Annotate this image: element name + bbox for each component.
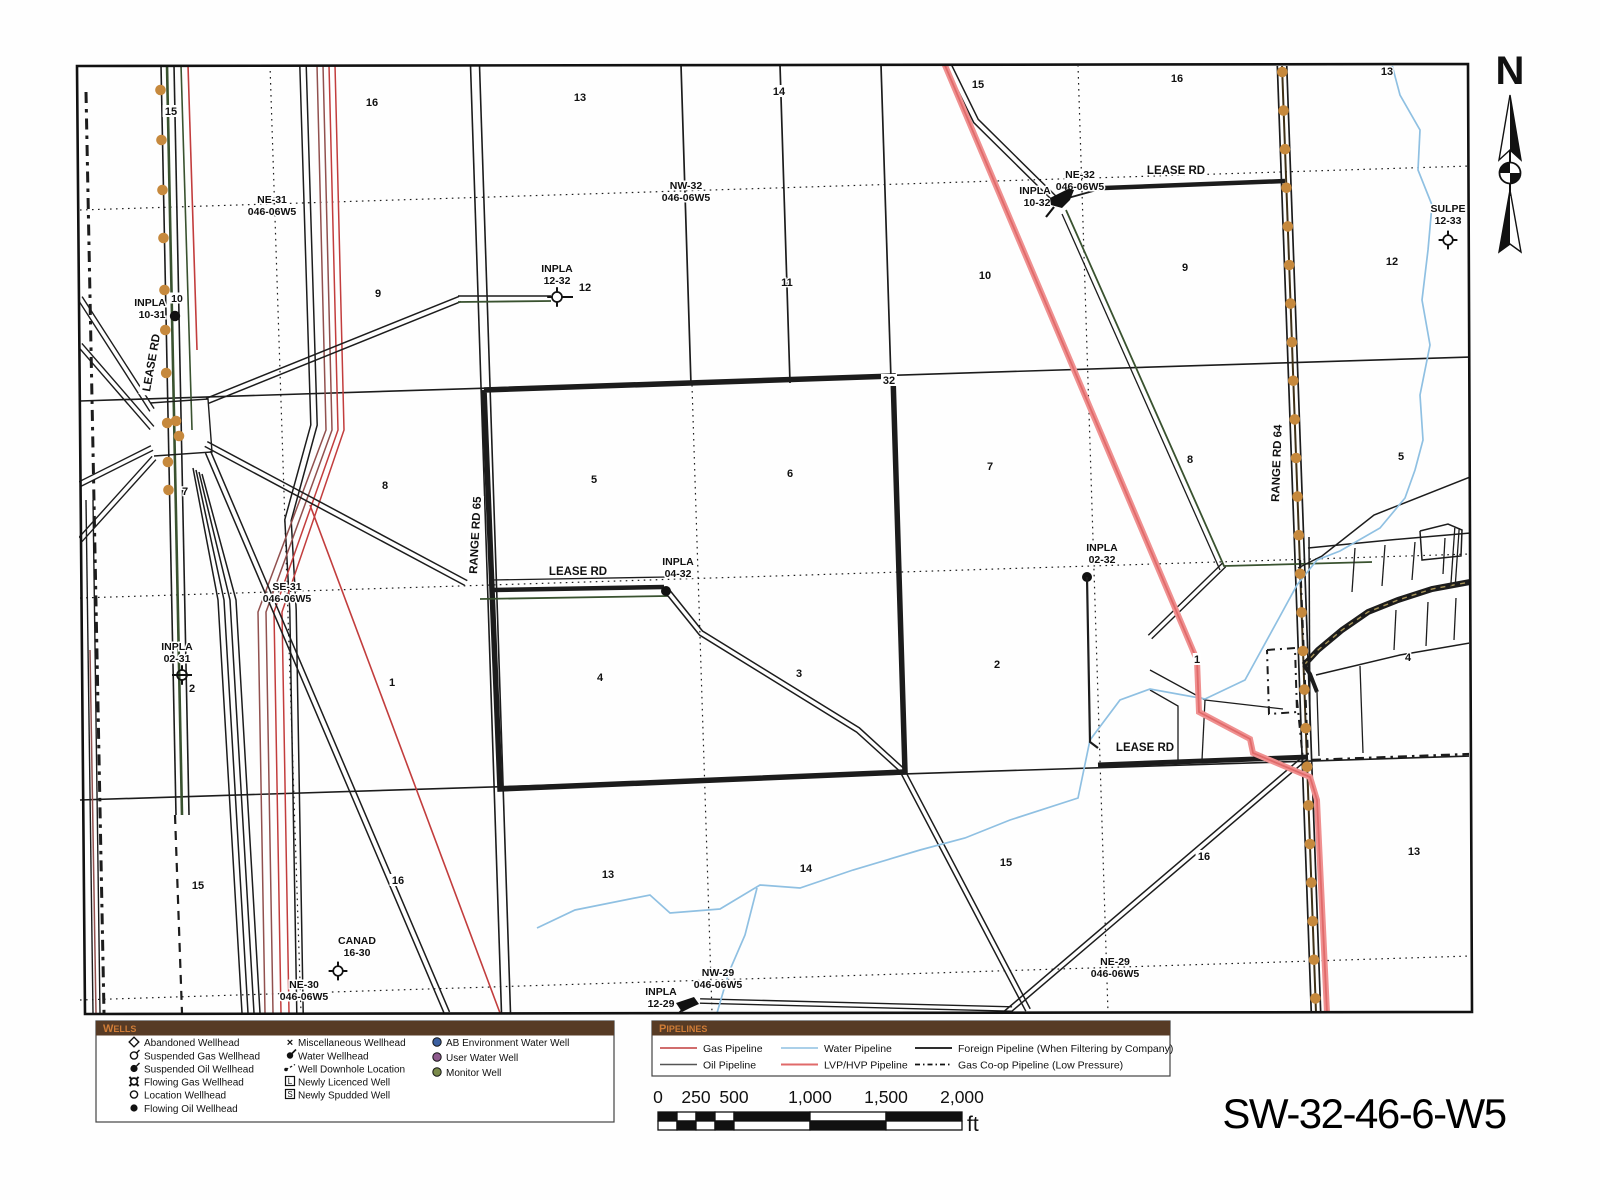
svg-text:SULPE: SULPE	[1430, 203, 1465, 215]
svg-text:NE-29: NE-29	[1100, 956, 1130, 968]
svg-text:LVP/HVP Pipeline: LVP/HVP Pipeline	[824, 1060, 908, 1072]
svg-text:LEASE RD: LEASE RD	[1147, 165, 1205, 177]
svg-text:SE-31: SE-31	[272, 581, 301, 593]
svg-text:10-31: 10-31	[139, 309, 166, 321]
svg-text:S: S	[287, 1090, 292, 1099]
svg-text:12: 12	[1386, 256, 1398, 268]
svg-text:10: 10	[979, 270, 991, 282]
svg-text:0: 0	[653, 1087, 663, 1107]
svg-text:Water Wellhead: Water Wellhead	[298, 1052, 369, 1063]
svg-text:046-06W5: 046-06W5	[1056, 181, 1105, 193]
svg-text:×: ×	[287, 1037, 293, 1049]
svg-text:Monitor Well: Monitor Well	[446, 1068, 501, 1079]
svg-text:INPLA: INPLA	[134, 297, 166, 309]
svg-text:16: 16	[366, 97, 378, 109]
svg-text:13: 13	[574, 92, 586, 104]
svg-text:16: 16	[392, 875, 404, 887]
svg-text:Newly Spudded Well: Newly Spudded Well	[298, 1091, 390, 1102]
svg-text:Suspended Oil Wellhead: Suspended Oil Wellhead	[144, 1065, 254, 1076]
svg-text:2: 2	[994, 659, 1000, 671]
svg-text:11: 11	[781, 277, 793, 289]
svg-text:7: 7	[182, 486, 188, 498]
svg-text:Flowing Oil Wellhead: Flowing Oil Wellhead	[144, 1104, 238, 1115]
svg-text:Flowing Gas Wellhead: Flowing Gas Wellhead	[144, 1078, 244, 1089]
svg-text:16: 16	[1198, 851, 1210, 863]
svg-text:SW-32-46-6-W5: SW-32-46-6-W5	[1222, 1090, 1505, 1137]
svg-text:Suspended Gas Wellhead: Suspended Gas Wellhead	[144, 1052, 260, 1063]
svg-text:N: N	[1496, 49, 1525, 93]
svg-text:INPLA: INPLA	[1019, 185, 1051, 197]
svg-text:9: 9	[1182, 262, 1188, 274]
svg-text:1: 1	[389, 677, 395, 689]
svg-text:16-30: 16-30	[344, 947, 371, 959]
svg-text:10: 10	[171, 293, 183, 305]
svg-text:32: 32	[883, 375, 895, 387]
svg-text:15: 15	[192, 880, 204, 892]
svg-text:04-32: 04-32	[665, 568, 692, 580]
svg-text:3: 3	[796, 668, 802, 680]
svg-text:14: 14	[800, 863, 813, 875]
svg-text:13: 13	[1408, 846, 1420, 858]
svg-text:15: 15	[1000, 857, 1012, 869]
svg-text:1,500: 1,500	[864, 1087, 908, 1107]
svg-text:1: 1	[1194, 654, 1200, 666]
svg-text:10-32: 10-32	[1024, 197, 1051, 209]
svg-text:8: 8	[382, 480, 388, 492]
svg-text:15: 15	[165, 106, 177, 118]
svg-text:250: 250	[681, 1087, 710, 1107]
svg-text:User Water Well: User Water Well	[446, 1053, 518, 1064]
svg-text:046-06W5: 046-06W5	[248, 206, 297, 218]
svg-text:Well Downhole Location: Well Downhole Location	[298, 1065, 405, 1076]
svg-text:12-32: 12-32	[544, 275, 571, 287]
svg-text:WELLS: WELLS	[103, 1023, 136, 1035]
svg-text:NW-29: NW-29	[702, 967, 735, 979]
svg-text:NE-32: NE-32	[1065, 169, 1095, 181]
svg-text:02-31: 02-31	[164, 653, 191, 665]
svg-text:NE-30: NE-30	[289, 979, 319, 991]
svg-text:INPLA: INPLA	[161, 641, 193, 653]
svg-text:046-06W5: 046-06W5	[694, 979, 743, 991]
svg-text:6: 6	[787, 468, 793, 480]
svg-text:046-06W5: 046-06W5	[263, 593, 312, 605]
svg-text:4: 4	[597, 672, 604, 684]
svg-text:Gas Co-op Pipeline (Low Pressu: Gas Co-op Pipeline (Low Pressure)	[958, 1060, 1123, 1072]
svg-text:046-06W5: 046-06W5	[662, 192, 711, 204]
svg-text:12-33: 12-33	[1435, 215, 1462, 227]
svg-text:13: 13	[602, 869, 614, 881]
svg-text:12: 12	[579, 282, 591, 294]
svg-text:12-29: 12-29	[648, 998, 675, 1010]
svg-text:LEASE RD: LEASE RD	[549, 566, 607, 578]
svg-text:9: 9	[375, 288, 381, 300]
svg-text:500: 500	[719, 1087, 748, 1107]
svg-text:046-06W5: 046-06W5	[1091, 968, 1140, 980]
svg-text:Location Wellhead: Location Wellhead	[144, 1091, 226, 1102]
svg-text:16: 16	[1171, 73, 1183, 85]
svg-text:NE-31: NE-31	[257, 194, 287, 206]
svg-text:5: 5	[1398, 451, 1404, 463]
svg-text:NW-32: NW-32	[670, 180, 703, 192]
svg-text:AB Environment Water Well: AB Environment Water Well	[446, 1038, 569, 1049]
svg-text:Miscellaneous Wellhead: Miscellaneous Wellhead	[298, 1038, 406, 1049]
svg-text:2,000: 2,000	[940, 1087, 984, 1107]
svg-text:8: 8	[1187, 454, 1193, 466]
svg-text:5: 5	[591, 474, 597, 486]
svg-text:14: 14	[773, 86, 786, 98]
svg-text:PIPELINES: PIPELINES	[659, 1023, 707, 1035]
svg-text:1,000: 1,000	[788, 1087, 832, 1107]
svg-text:2: 2	[189, 683, 195, 695]
svg-text:ft: ft	[967, 1113, 979, 1136]
svg-text:INPLA: INPLA	[645, 986, 677, 998]
svg-text:Oil Pipeline: Oil Pipeline	[703, 1060, 756, 1072]
svg-text:Foreign Pipeline (When Filteri: Foreign Pipeline (When Filtering by Comp…	[958, 1043, 1173, 1055]
svg-text:L: L	[288, 1077, 293, 1086]
svg-text:CANAD: CANAD	[338, 935, 376, 947]
svg-text:Water Pipeline: Water Pipeline	[824, 1043, 892, 1055]
svg-text:Abandoned Wellhead: Abandoned Wellhead	[144, 1038, 239, 1049]
svg-text:LEASE RD: LEASE RD	[1116, 742, 1174, 754]
svg-text:INPLA: INPLA	[1086, 542, 1118, 554]
svg-text:Gas Pipeline: Gas Pipeline	[703, 1043, 763, 1055]
svg-text:15: 15	[972, 79, 984, 91]
svg-text:046-06W5: 046-06W5	[280, 991, 329, 1003]
svg-text:Newly Licenced Well: Newly Licenced Well	[298, 1078, 390, 1089]
svg-text:13: 13	[1381, 66, 1393, 78]
svg-text:7: 7	[987, 461, 993, 473]
svg-text:4: 4	[1405, 652, 1412, 664]
svg-text:INPLA: INPLA	[662, 556, 694, 568]
svg-text:02-32: 02-32	[1089, 554, 1116, 566]
svg-text:INPLA: INPLA	[541, 263, 573, 275]
